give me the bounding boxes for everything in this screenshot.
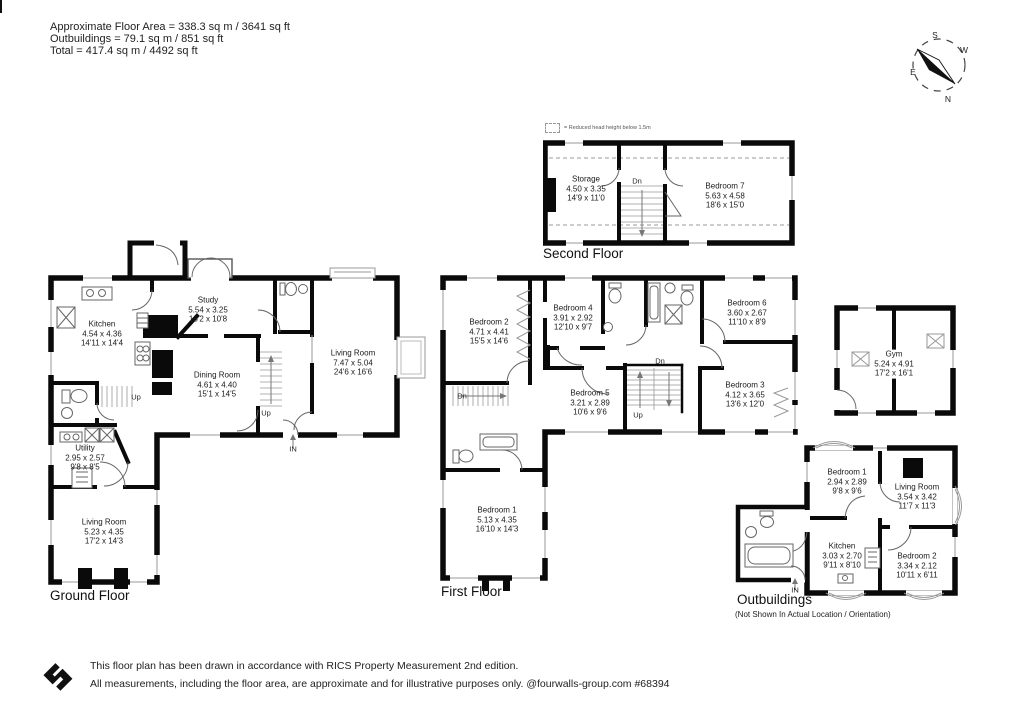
room-label-first-bedroom6: Bedroom 6 3.60 x 2.67 11'10 x 8'9 <box>727 299 767 328</box>
stair-label-ground-up1: Up <box>131 393 141 402</box>
outbuildings-subtitle: (Not Shown In Actual Location / Orientat… <box>735 610 891 619</box>
room-label-ground-dining: Dining Room 4.61 x 4.40 15'1 x 14'5 <box>194 371 240 400</box>
scan-edge-mark <box>0 0 2 13</box>
room-label-first-bedroom4: Bedroom 4 3.91 x 2.92 12'10 x 9'7 <box>553 304 593 333</box>
entrance-label-ground-in: IN <box>289 445 297 454</box>
room-label-out-bedroom1: Bedroom 1 2.94 x 2.89 9'8 x 9'6 <box>827 468 867 497</box>
room-label-out-bedroom2: Bedroom 2 3.34 x 2.12 10'11 x 6'11 <box>896 552 937 581</box>
footer-line1: This floor plan has been drawn in accord… <box>90 660 518 672</box>
cloakroom-toilet <box>280 283 308 296</box>
room-label-first-bedroom3: Bedroom 3 4.12 x 3.65 13'6 x 12'0 <box>725 381 765 410</box>
fourwalls-logo <box>43 656 77 702</box>
compass-south-label: S <box>932 30 938 40</box>
stair-label-first-dn-center: Dn <box>655 357 665 366</box>
living-top-window <box>330 268 375 281</box>
stair-label-ground-up2: Up <box>261 409 271 418</box>
area-summary-line3: Total = 417.4 sq m / 4492 sq ft <box>50 46 290 58</box>
stair-label-first-dn-left: Dn <box>457 392 467 401</box>
room-label-first-bedroom2: Bedroom 2 4.71 x 4.41 15'5 x 14'6 <box>469 318 509 347</box>
study-french-doors <box>188 258 232 281</box>
compass-icon: S W N E <box>903 24 977 106</box>
floorplan-page: Approximate Floor Area = 338.3 sq m / 36… <box>0 0 1024 723</box>
ground-floor-title: Ground Floor <box>50 588 130 603</box>
compass-needle-light <box>917 49 955 84</box>
first-floor-title: First Floor <box>441 584 502 599</box>
room-label-out-kitchen: Kitchen 3.03 x 2.70 9'11 x 8'10 <box>822 542 862 571</box>
room-label-ground-utility: Utility 2.95 x 2.57 9'8 x 8'5 <box>65 444 105 473</box>
area-summary-line2: Outbuildings = 79.1 sq m / 851 sq ft <box>50 34 290 46</box>
compass-east-label: E <box>910 67 916 77</box>
outbuildings-title: Outbuildings <box>737 592 812 607</box>
second-floor-title: Second Floor <box>543 246 623 261</box>
room-label-second-storage: Storage 4.50 x 3.35 14'9 x 11'0 <box>566 175 606 204</box>
stair-label-second-dn: Dn <box>632 177 642 186</box>
room-label-ground-kitchen: Kitchen 4.54 x 4.36 14'11 x 14'4 <box>81 320 123 349</box>
room-label-ground-living-second: Living Room 5.23 x 4.35 17'2 x 14'3 <box>82 518 126 547</box>
room-label-out-living: Living Room 3.54 x 3.42 11'7 x 11'3 <box>895 483 939 512</box>
room-label-gym: Gym 5.24 x 4.91 17'2 x 16'1 <box>872 350 916 379</box>
stair-label-first-up-center: Up <box>633 411 643 420</box>
compass-west-label: W <box>960 45 968 55</box>
room-label-first-bedroom5: Bedroom 5 3.21 x 2.89 10'6 x 9'6 <box>570 389 610 418</box>
footer-line2: All measurements, including the floor ar… <box>90 678 670 690</box>
room-label-ground-study: Study 5.54 x 3.25 18'2 x 10'8 <box>188 296 228 325</box>
outbuildings-plan <box>733 432 979 602</box>
living-bay-window <box>394 337 425 378</box>
area-summary: Approximate Floor Area = 338.3 sq m / 36… <box>50 22 290 57</box>
room-label-first-bedroom1: Bedroom 1 5.13 x 4.35 16'10 x 14'3 <box>476 506 519 535</box>
room-label-second-bedroom7: Bedroom 7 5.63 x 4.58 18'6 x 15'0 <box>705 182 745 211</box>
room-label-ground-living-main: Living Room 7.47 x 5.04 24'6 x 16'6 <box>331 349 375 378</box>
compass-north-label: N <box>945 94 951 104</box>
entrance-label-out-in: IN <box>791 586 799 595</box>
